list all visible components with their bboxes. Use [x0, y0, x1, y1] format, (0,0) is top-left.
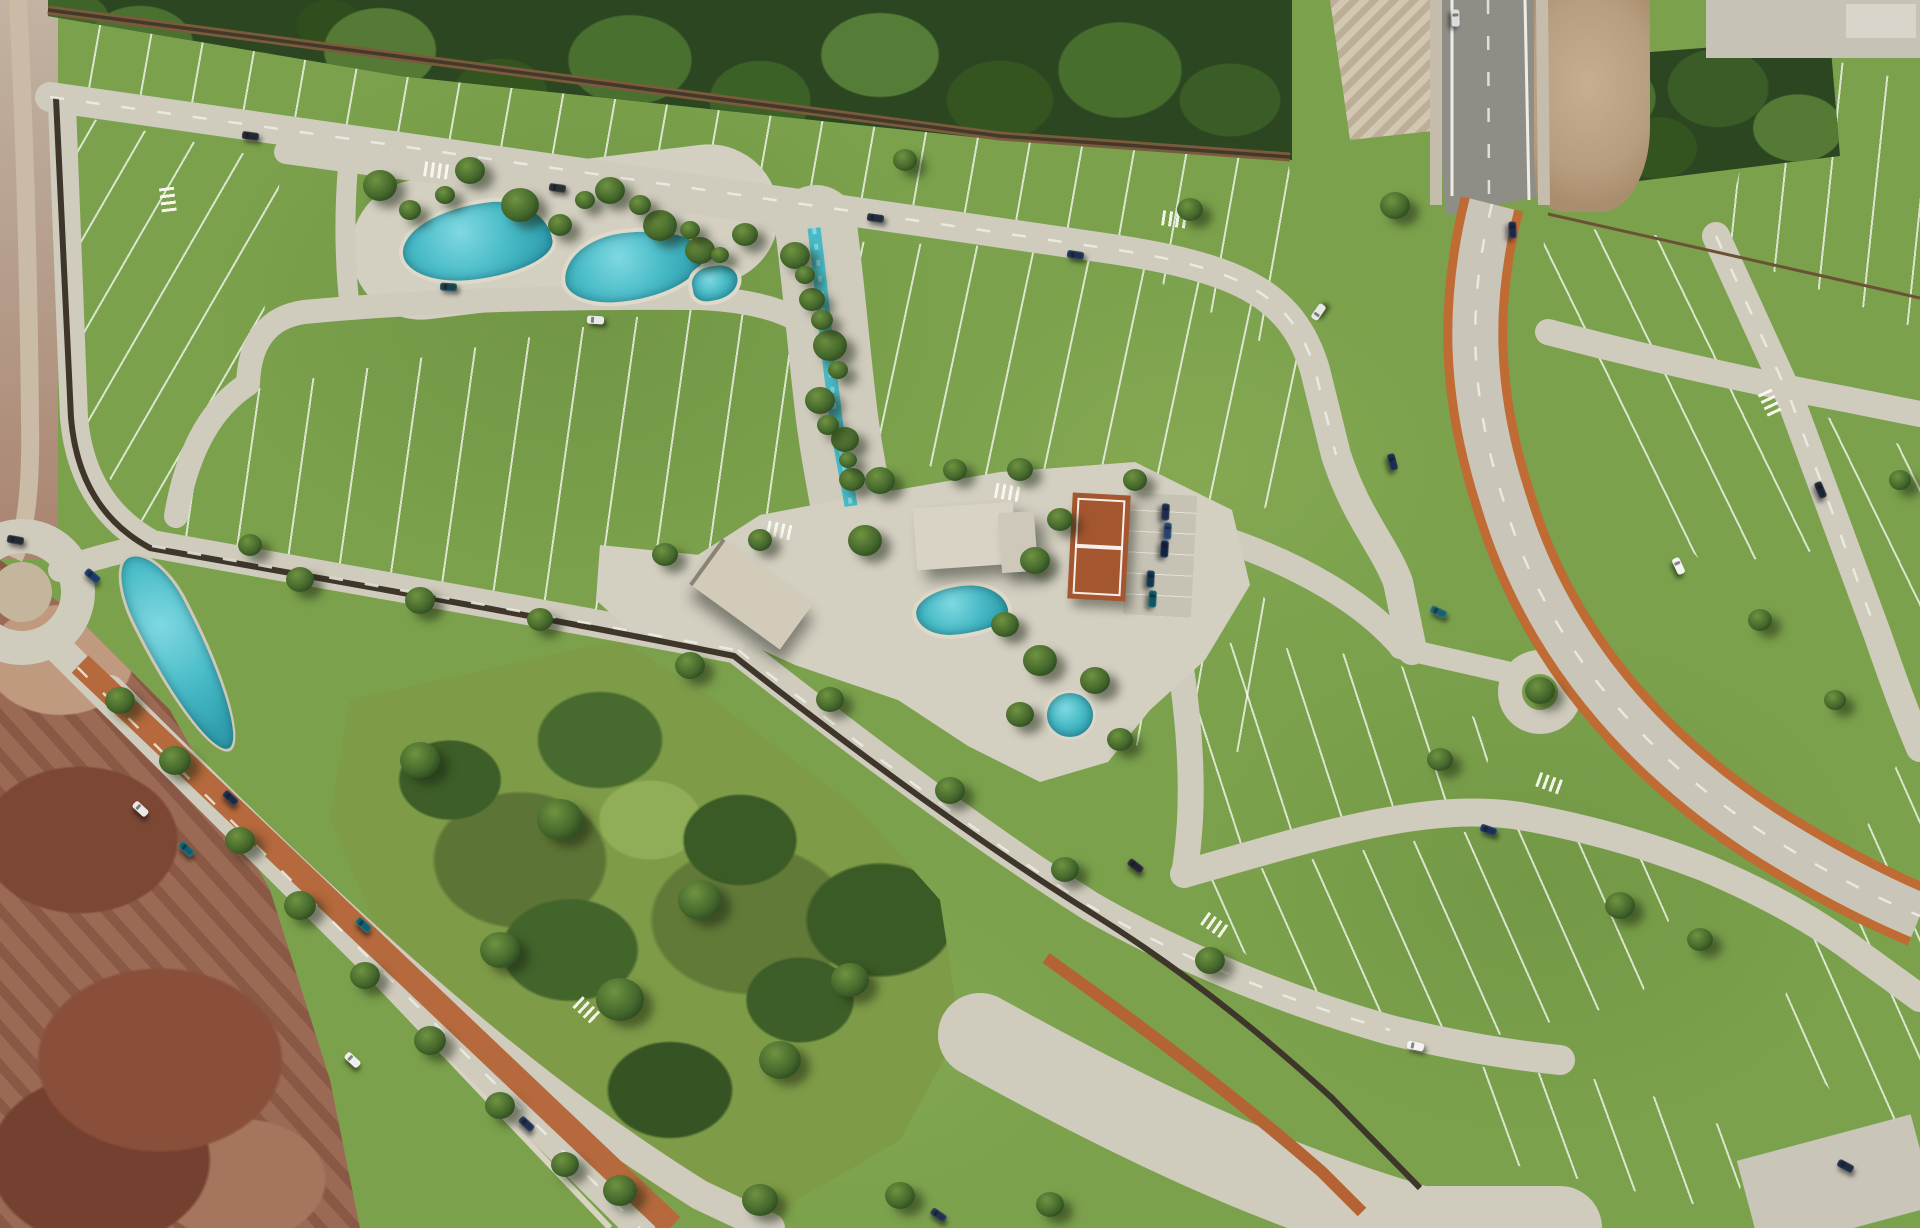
car [549, 183, 567, 193]
car [222, 789, 240, 806]
car [178, 840, 196, 857]
aerial-site-plan [0, 0, 1920, 1228]
car [83, 567, 101, 584]
car [132, 800, 150, 817]
car [867, 213, 885, 223]
car [1126, 858, 1144, 875]
car [1163, 522, 1172, 539]
car [1406, 1040, 1424, 1051]
car [344, 1051, 362, 1068]
car [1386, 453, 1398, 471]
car [1160, 540, 1169, 557]
car [518, 1115, 536, 1132]
car [1813, 481, 1827, 500]
car [1508, 221, 1517, 238]
car [929, 1207, 948, 1223]
car [1161, 503, 1170, 520]
car [1836, 1158, 1855, 1173]
car [1146, 570, 1155, 587]
car [1429, 605, 1448, 619]
car [1148, 590, 1157, 607]
car [1671, 557, 1685, 576]
car [6, 535, 24, 546]
car [355, 916, 373, 933]
car [242, 131, 260, 141]
car [1066, 250, 1084, 261]
car [440, 282, 458, 291]
car [587, 315, 605, 324]
car [1310, 303, 1326, 322]
car [1451, 9, 1460, 26]
cars-layer [0, 0, 1920, 1228]
car [1479, 823, 1498, 836]
